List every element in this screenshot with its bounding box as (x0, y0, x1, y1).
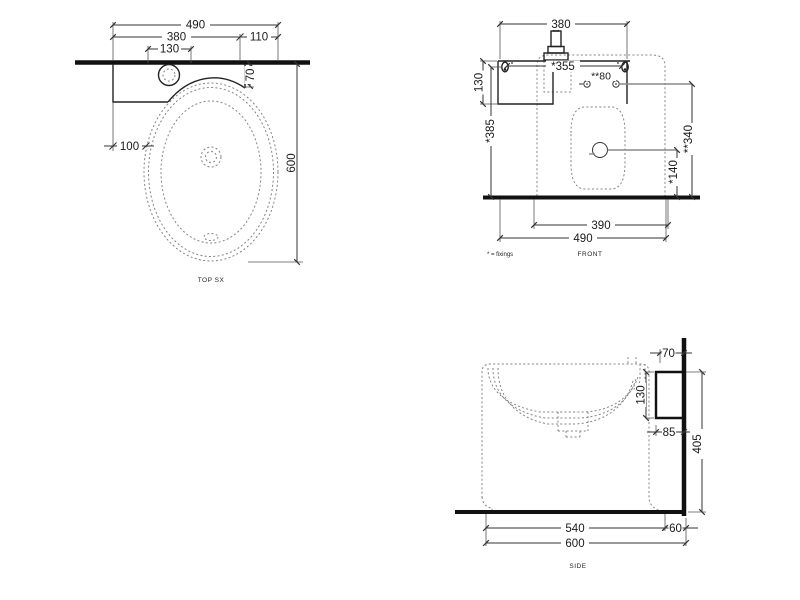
dim-top-shelf-width: 380 (167, 32, 186, 44)
tap-hole (159, 65, 180, 86)
dim-front-shelf-width: 380 (551, 19, 570, 31)
drain-front (593, 143, 608, 158)
basin-rim-inner-dashed (149, 88, 274, 257)
fixings-note: * = fixings (487, 252, 513, 258)
side-view: 70 130 85 405 540 60 600 SIDE (455, 338, 706, 570)
dim-front-shelf-fixing-height: *385 (485, 119, 497, 143)
dim-side-bracket-height: 130 (635, 385, 647, 404)
dim-side-rim-to-wall: 70 (662, 348, 675, 360)
front-view: 380 *355 **80 130 *385 *140 **340 (473, 19, 700, 259)
dim-front-overall-width: 490 (573, 233, 592, 245)
tap-hole-side-dashed (628, 357, 636, 364)
overflow-mark-dashed (204, 234, 218, 241)
dim-side-gap-below-bracket: 85 (663, 427, 676, 439)
dim-top-overall-width: 490 (186, 20, 205, 32)
dim-top-side-offset: 110 (250, 32, 268, 44)
bowl-curve-3 (498, 368, 633, 424)
basin-outer-rim-dashed (144, 83, 278, 261)
dim-top-overall-depth: 600 (286, 153, 298, 172)
dim-side-basin-depth: 540 (565, 523, 584, 535)
bowl-curve-1 (488, 368, 638, 412)
bowl-outline-dashed (571, 107, 625, 189)
dim-front-drain-height: *140 (668, 160, 680, 184)
dim-side-overall-depth: 600 (565, 538, 584, 550)
drawing-svg: 490 380 110 130 70 100 600 TOP SX (0, 0, 800, 600)
tap-hole-inner-dashed (163, 69, 175, 81)
dim-front-base-width: 390 (591, 220, 610, 232)
dim-front-basin-fixing-height: **340 (683, 125, 695, 153)
top-view-label: TOP SX (198, 277, 225, 284)
side-view-label: SIDE (569, 563, 586, 570)
dim-front-fixing-span: *355 (551, 61, 575, 73)
dim-side-bracket-top-height: 405 (692, 434, 704, 453)
shelf-fixing-left (502, 62, 513, 72)
dim-top-rim-to-wall: 70 (245, 69, 257, 82)
basin-bowl-dashed (161, 101, 261, 243)
wall-bracket (656, 372, 684, 418)
dim-side-wall-gap: 60 (669, 523, 682, 535)
technical-drawing: 490 380 110 130 70 100 600 TOP SX (0, 0, 800, 600)
top-view: 490 380 110 130 70 100 600 TOP SX (75, 19, 310, 284)
drain-boss-dashed (558, 412, 588, 437)
dim-top-tap-center: 130 (160, 44, 179, 56)
drain-hole-dashed (201, 147, 221, 167)
front-view-label: FRONT (578, 251, 603, 258)
dim-front-shelf-drop: 130 (473, 73, 485, 92)
drain-hole-inner-dashed (206, 152, 217, 163)
shelf-left-block (498, 61, 553, 104)
side-foot-dashed (482, 497, 492, 512)
dim-top-edge-to-basin: 100 (120, 141, 139, 153)
dim-front-basin-fixing-span: **80 (591, 71, 611, 83)
